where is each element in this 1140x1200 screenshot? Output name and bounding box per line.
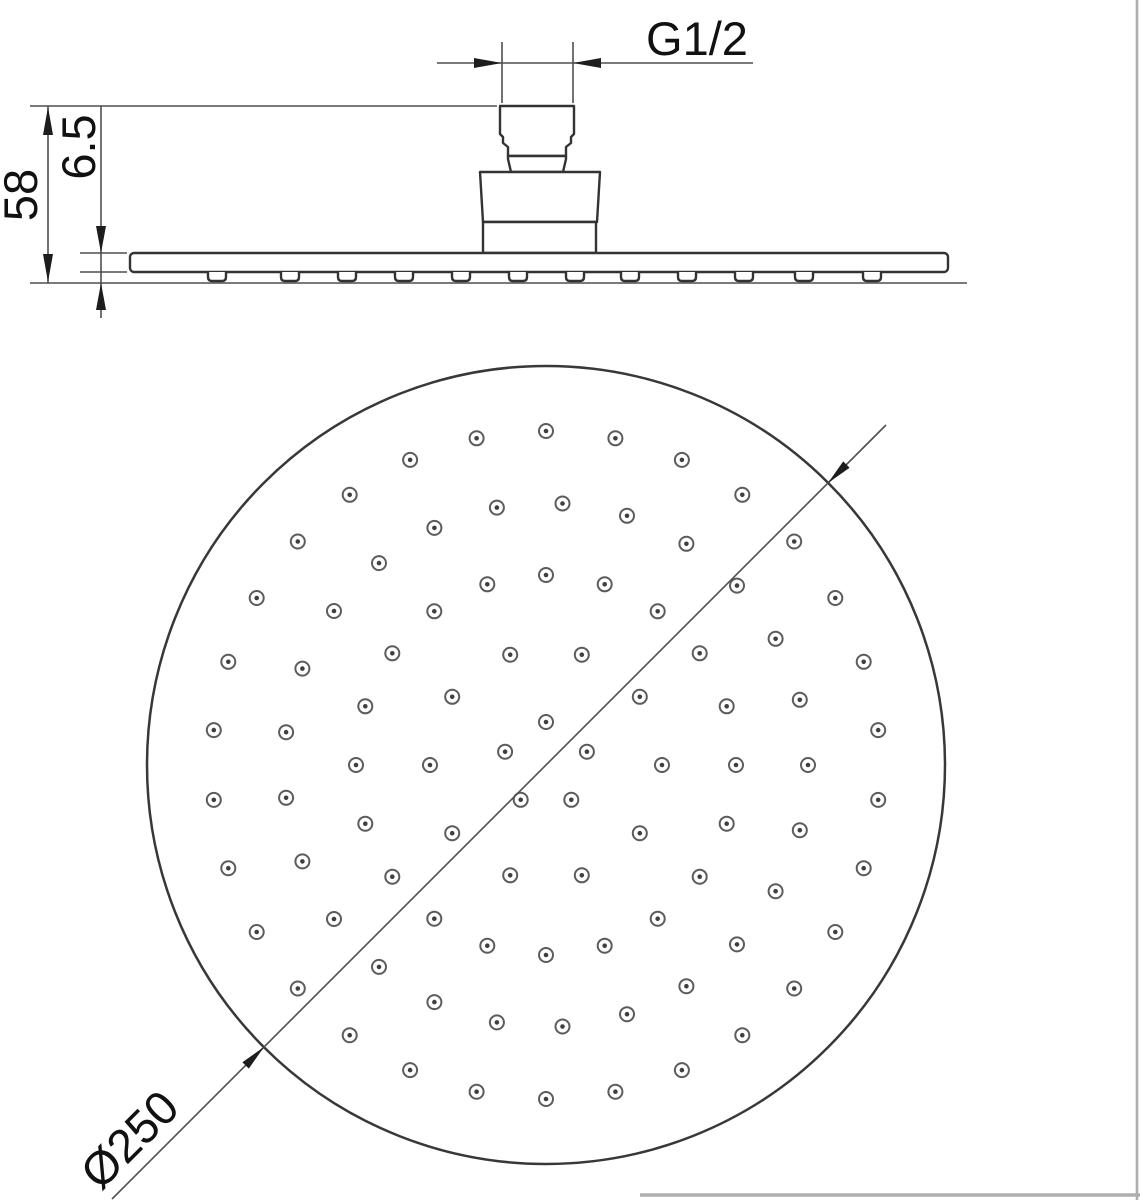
nozzle-hole: [655, 916, 660, 921]
nozzle-hole: [284, 796, 289, 801]
diameter-dimension: Ø250: [70, 425, 886, 1199]
nozzle-hole: [347, 1033, 352, 1038]
nozzle-tab: [795, 272, 813, 281]
nozzle-hole: [697, 874, 702, 879]
nozzle-hole: [332, 917, 337, 922]
nozzle-hole: [390, 874, 395, 879]
nozzle-hole: [495, 1020, 500, 1025]
nozzle-hole: [474, 1089, 479, 1094]
nozzle-hole: [638, 695, 643, 700]
nozzle-hole: [495, 505, 500, 510]
nozzle-hole: [408, 458, 413, 463]
nozzle-hole: [792, 986, 797, 991]
nozzle-hole: [432, 526, 437, 531]
nozzle-hole: [363, 704, 368, 709]
nozzle-hole: [876, 728, 881, 733]
nozzle-hole: [625, 1012, 630, 1017]
nozzle-hole: [798, 698, 803, 703]
nozzle-hole: [226, 660, 231, 665]
nozzle-hole: [655, 609, 660, 614]
nozzle-hole: [734, 763, 739, 768]
nozzle-hole: [560, 501, 565, 506]
nozzle-hole: [735, 942, 740, 947]
nozzle-hole: [580, 652, 585, 657]
technical-drawing-canvas: G1/2 58 6.5 Ø250: [0, 0, 1140, 1200]
nozzle-tab: [621, 272, 639, 281]
nozzle-tab: [338, 272, 356, 281]
nozzle-hole: [485, 582, 490, 587]
nozzle-hole: [625, 514, 630, 519]
nozzle-hole: [602, 582, 607, 587]
nozzle-hole: [432, 1000, 437, 1005]
nozzle-hole: [300, 666, 305, 671]
nozzle-hole: [660, 763, 665, 768]
nozzle-hole: [508, 873, 513, 878]
nozzle-hole: [212, 728, 217, 733]
nozzle-hole: [544, 953, 549, 958]
nozzle-hole: [377, 965, 382, 970]
nozzle-hole: [613, 1089, 618, 1094]
shower-plate: [130, 253, 948, 272]
nozzle-tab: [566, 272, 584, 281]
nozzle-hole: [296, 986, 301, 991]
nozzle-hole: [332, 609, 337, 614]
nozzle-hole: [354, 763, 359, 768]
nozzle-hole: [724, 704, 729, 709]
nozzle-hole: [735, 583, 740, 588]
nozzle-tab: [281, 272, 299, 281]
nozzle-hole: [390, 651, 395, 656]
nozzle-hole: [680, 1068, 685, 1073]
nozzle-hole: [226, 866, 231, 871]
nozzle-hole: [300, 859, 305, 864]
connector-neck: [508, 156, 566, 172]
nozzle-hole: [363, 821, 368, 826]
arrow-down-left-icon: [828, 461, 850, 483]
nozzle-hole: [773, 637, 778, 642]
nozzle-hole: [428, 763, 433, 768]
nozzle-hole: [684, 984, 689, 989]
thread-size-label: G1/2: [646, 12, 748, 65]
nozzle-hole: [432, 609, 437, 614]
nozzle-tab: [863, 272, 881, 281]
nozzle-hole: [254, 930, 259, 935]
nozzle-hole: [697, 651, 702, 656]
nozzle-tab: [208, 272, 226, 281]
nozzle-hole: [503, 749, 508, 754]
nozzle-hole: [377, 561, 382, 566]
nozzle-hole: [773, 889, 778, 894]
nozzle-hole: [450, 831, 455, 836]
nozzle-hole: [544, 1097, 549, 1102]
nozzle-hole: [347, 493, 352, 498]
nozzle-hole: [740, 493, 745, 498]
drawing-page: G1/2 58 6.5 Ø250: [0, 0, 1140, 1200]
nozzle-hole: [560, 1024, 565, 1029]
edge-thickness-label: 6.5: [52, 114, 105, 179]
nozzle-hole: [613, 436, 618, 441]
side-view: G1/2 58 6.5: [0, 12, 967, 318]
nozzle-hole: [638, 831, 643, 836]
nozzle-hole: [724, 821, 729, 826]
nozzle-hole: [833, 596, 838, 601]
nozzle-hole: [518, 798, 523, 803]
nozzle-hole: [876, 798, 881, 803]
nozzle-hole: [254, 596, 259, 601]
nozzle-tab: [395, 272, 413, 281]
nozzle-hole: [284, 730, 289, 735]
arrow-up-icon: [96, 283, 106, 310]
nozzle-hole: [474, 436, 479, 441]
nozzle-hole: [740, 1033, 745, 1038]
nozzle-tab: [735, 272, 753, 281]
nozzle-hole: [585, 749, 590, 754]
nozzle-hole: [680, 458, 685, 463]
nozzle-hole: [212, 798, 217, 803]
nozzle-hole: [602, 943, 607, 948]
nozzle-hole: [580, 873, 585, 878]
nozzle-hole: [569, 798, 574, 803]
nozzle-hole: [544, 573, 549, 578]
arrow-right-icon: [474, 58, 502, 68]
nozzle-row: [208, 272, 881, 281]
nozzle-hole: [544, 720, 549, 725]
arrow-down-icon: [96, 226, 106, 253]
connector-body-upper: [480, 172, 600, 222]
nozzle-hole: [833, 930, 838, 935]
bottom-view: Ø250: [70, 366, 945, 1199]
nozzle-tab: [452, 272, 470, 281]
nozzle-tab: [509, 272, 527, 281]
nozzle-hole: [861, 866, 866, 871]
nozzle-hole: [544, 429, 549, 434]
side-view-geometry: [130, 106, 948, 281]
nozzle-hole: [485, 943, 490, 948]
nozzle-hole: [861, 660, 866, 665]
arrow-down-icon: [43, 254, 53, 282]
nozzle-hole: [684, 542, 689, 547]
nozzle-hole: [798, 828, 803, 833]
nozzle-hole: [806, 763, 811, 768]
nozzle-hole: [408, 1068, 413, 1073]
nozzle-hole: [432, 916, 437, 921]
nozzle-hole: [508, 652, 513, 657]
nozzle-hole: [296, 539, 301, 544]
nozzle-hole: [792, 539, 797, 544]
nozzle-tab: [678, 272, 696, 281]
connector-thread: [500, 106, 574, 156]
connector-body-lower: [483, 222, 596, 253]
nozzle-hole: [450, 695, 455, 700]
diameter-dim-line: [112, 425, 886, 1199]
arrow-left-icon: [573, 58, 601, 68]
overall-height-label: 58: [0, 169, 47, 221]
arrow-up-right-icon: [242, 1047, 264, 1069]
